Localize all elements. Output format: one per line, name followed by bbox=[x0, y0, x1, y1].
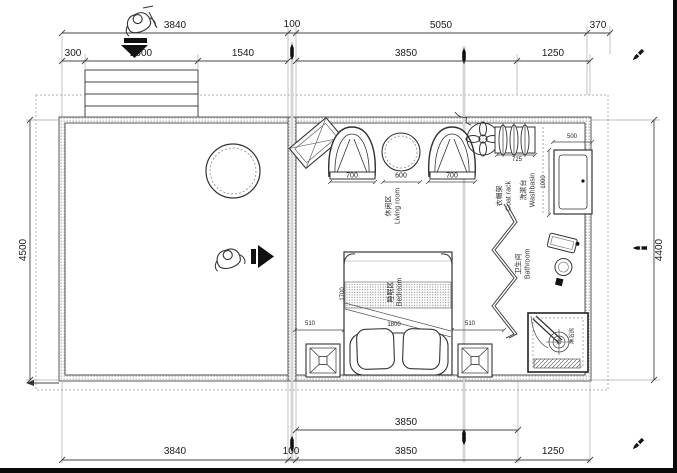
dim-bottom2-3850: 3850 bbox=[395, 447, 417, 457]
dim-bed-1700: 1700 bbox=[340, 287, 346, 300]
entry-steps bbox=[85, 70, 198, 117]
dim-chair1-700: 700 bbox=[346, 173, 358, 180]
room-label-coat-rack: 衣帽架 Coat rack bbox=[496, 181, 514, 211]
room-label-coat-rack-en: Coat rack bbox=[505, 181, 514, 211]
room-label-shower: 淋浴房 bbox=[570, 328, 577, 345]
dim-right-4400: 4400 bbox=[655, 239, 665, 261]
dim-table-600: 600 bbox=[395, 173, 407, 180]
dim-top2-1250: 1250 bbox=[542, 49, 564, 59]
room-label-living-en: Living room bbox=[394, 188, 403, 224]
room-label-washbasin-zh: 洗漱台 bbox=[520, 173, 529, 207]
dim-top1-370: 370 bbox=[590, 21, 607, 31]
room-label-shower-zh: 淋浴房 bbox=[570, 328, 577, 345]
room-label-washbasin-en: Washbasin bbox=[529, 173, 538, 207]
room-label-coat-rack-zh: 衣帽架 bbox=[496, 181, 505, 211]
pencil-icon-right bbox=[633, 246, 648, 249]
dim-top2-1540: 1540 bbox=[232, 49, 254, 59]
nightstand-right bbox=[458, 344, 492, 377]
dim-bottom2-1250: 1250 bbox=[542, 447, 564, 457]
room-label-bedroom-en: Bedroom bbox=[396, 278, 405, 306]
pencil-icon-top-right bbox=[631, 49, 644, 62]
dim-washbasin-1000: 1000 bbox=[541, 175, 547, 188]
coat-rack bbox=[495, 123, 535, 157]
dim-bed-510-left: 510 bbox=[305, 321, 315, 327]
dim-coatrack-725: 725 bbox=[512, 157, 522, 163]
dim-top2-3850: 3850 bbox=[395, 49, 417, 59]
room-label-living-zh: 休闲区 bbox=[385, 188, 394, 224]
dim-top1-100: 100 bbox=[284, 20, 301, 30]
pencil-icon-bottom-right bbox=[631, 438, 644, 451]
round-table-left bbox=[206, 144, 260, 198]
room-label-bedroom-zh: 睡眠区 bbox=[387, 278, 396, 306]
dim-bottom2-3840: 3840 bbox=[164, 447, 186, 457]
round-table-living bbox=[382, 133, 420, 171]
shower bbox=[528, 313, 588, 372]
dim-bottom2-100: 100 bbox=[283, 447, 300, 457]
room-label-living: 休闲区 Living room bbox=[385, 188, 403, 224]
room-label-bathroom-en: Bathroom bbox=[524, 249, 533, 279]
leader-arrow-left bbox=[26, 380, 59, 386]
room-label-washbasin: 洗漱台 Washbasin bbox=[520, 173, 538, 207]
dim-top1-3840: 3840 bbox=[164, 21, 186, 31]
floor-plan-canvas: 3840 100 5050 370 300 2000 1540 3850 125… bbox=[0, 0, 677, 473]
dim-top2-2000: 2000 bbox=[130, 49, 152, 59]
dim-chair2-700: 700 bbox=[446, 173, 458, 180]
dim-top1-5050: 5050 bbox=[430, 21, 452, 31]
nightstand-left bbox=[306, 344, 340, 377]
dim-bed-1800: 1800 bbox=[387, 322, 400, 328]
dim-top2-300: 300 bbox=[65, 49, 82, 59]
washbasin-counter bbox=[554, 150, 592, 214]
room-label-bathroom: 卫生间 Bathroom bbox=[515, 249, 533, 279]
dim-bottom1-3850: 3850 bbox=[395, 418, 417, 428]
dim-bed-510-right: 510 bbox=[465, 321, 475, 327]
dim-left-4500: 4500 bbox=[19, 239, 29, 261]
dim-washbasin-500: 500 bbox=[567, 134, 577, 140]
bed bbox=[344, 252, 452, 375]
room-label-bathroom-zh: 卫生间 bbox=[515, 249, 524, 279]
person-cart-icon bbox=[122, 6, 157, 36]
plan-linework bbox=[0, 0, 677, 473]
room-label-bedroom: 睡眠区 Bedroom bbox=[387, 278, 405, 306]
